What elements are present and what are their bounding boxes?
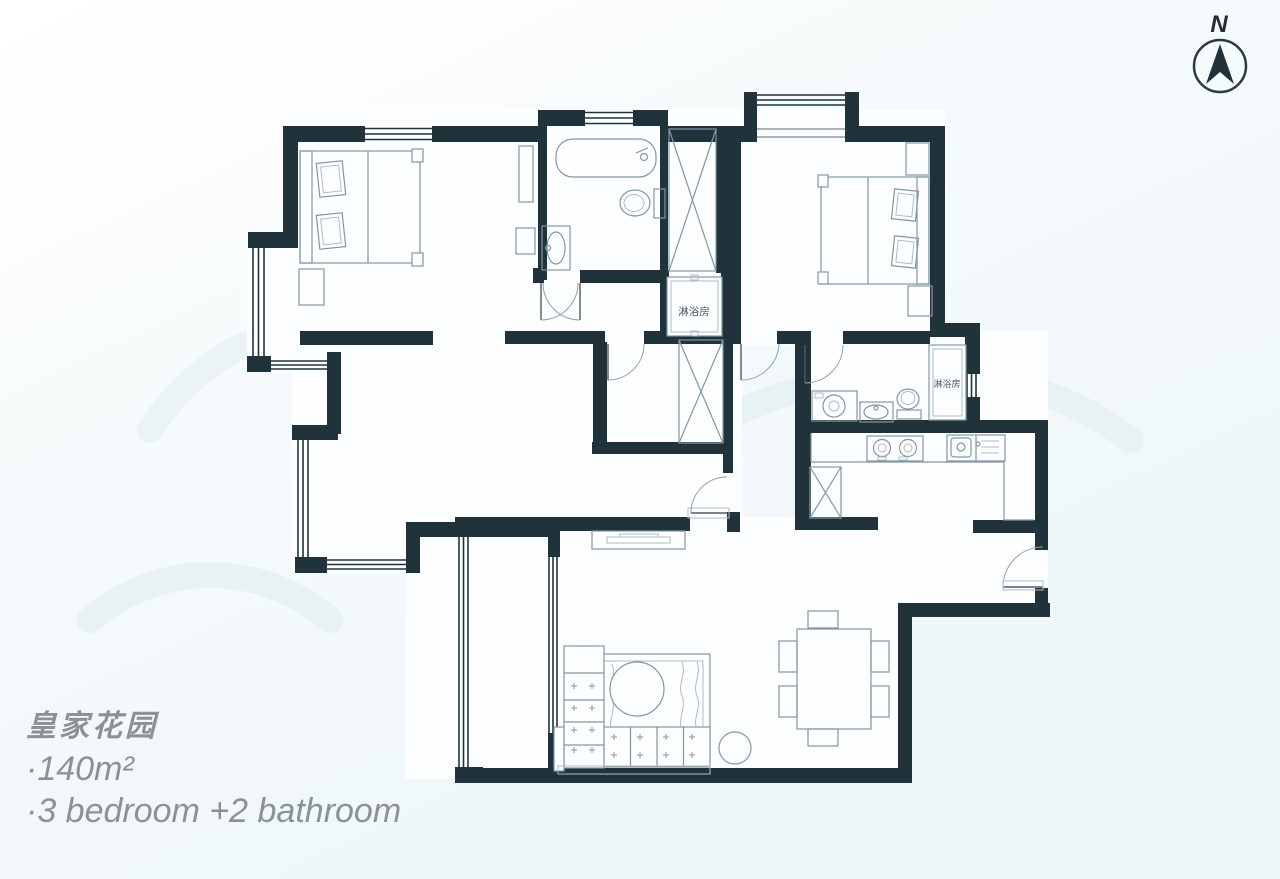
coffee-table: [610, 662, 664, 716]
bedroom2-door: [741, 344, 779, 380]
title-block: 皇家花园 ·140m² ·3 bedroom +2 bathroom: [26, 710, 401, 830]
area-label: ·140m²: [26, 750, 401, 788]
project-name: 皇家花园: [26, 710, 401, 744]
shower-room-2: 淋浴房: [929, 345, 966, 420]
rooms-label: ·3 bedroom +2 bathroom: [26, 792, 401, 830]
compass-north-label: N: [1210, 11, 1228, 38]
compass: N: [1194, 11, 1246, 92]
floor-plan-page: 淋浴房 淋浴房: [0, 0, 1280, 879]
shower-room-1: 淋浴房: [667, 275, 722, 336]
shower-room-2-label: 淋浴房: [933, 378, 960, 390]
shower-room-1-label: 淋浴房: [678, 305, 710, 318]
